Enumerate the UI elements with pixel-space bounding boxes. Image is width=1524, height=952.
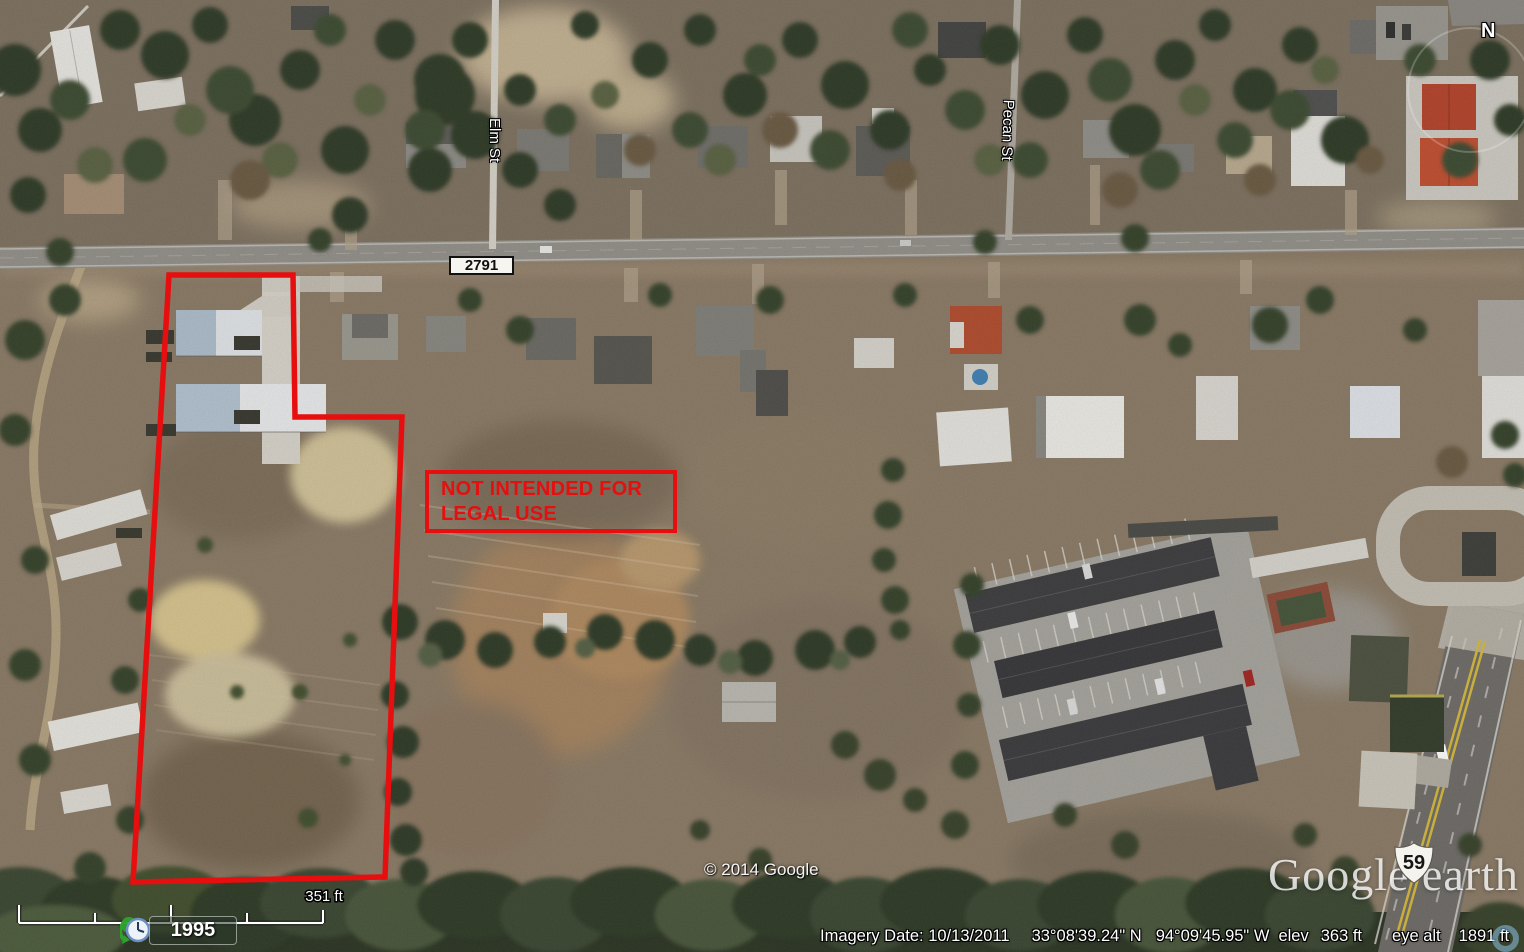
status-bar: Imagery Date: 10/13/2011 33°08'39.24" N … <box>820 927 1509 946</box>
warning-line1: NOT INTENDED FOR <box>441 477 673 502</box>
us-59-route-shield: 59 <box>1393 840 1435 886</box>
warning-label: NOT INTENDED FOR LEGAL USE <box>425 470 677 533</box>
scale-bar-label: 351 ft <box>305 888 343 905</box>
look-joystick-ring[interactable] <box>1492 925 1519 952</box>
imagery-date: Imagery Date: 10/13/2011 <box>820 927 1010 946</box>
satellite-map[interactable] <box>0 0 1524 952</box>
elevation-label: elev <box>1278 927 1308 946</box>
warning-line2: LEGAL USE <box>441 502 673 527</box>
grain-light <box>0 0 1524 952</box>
elevation-value: 363 ft <box>1321 927 1362 946</box>
elm-st-label: Elm St <box>486 118 503 162</box>
compass-north-button[interactable]: N <box>1481 20 1495 43</box>
google-earth-viewport[interactable]: NOT INTENDED FOR LEGAL USE 2791 Elm St P… <box>0 0 1524 952</box>
pecan-st-label: Pecan St <box>998 99 1017 160</box>
timeline-year-chip[interactable]: 1995 <box>149 916 237 945</box>
latitude-readout: 33°08'39.24" N <box>1032 927 1142 946</box>
longitude-readout: 94°09'45.95" W <box>1156 927 1270 946</box>
historical-imagery-clock-icon[interactable] <box>120 912 152 948</box>
copyright-notice: © 2014 Google <box>704 860 819 880</box>
eye-altitude-label: eye alt <box>1392 927 1441 946</box>
fm-2791-road-shield: 2791 <box>449 256 514 275</box>
us-59-shield-number: 59 <box>1403 852 1425 874</box>
